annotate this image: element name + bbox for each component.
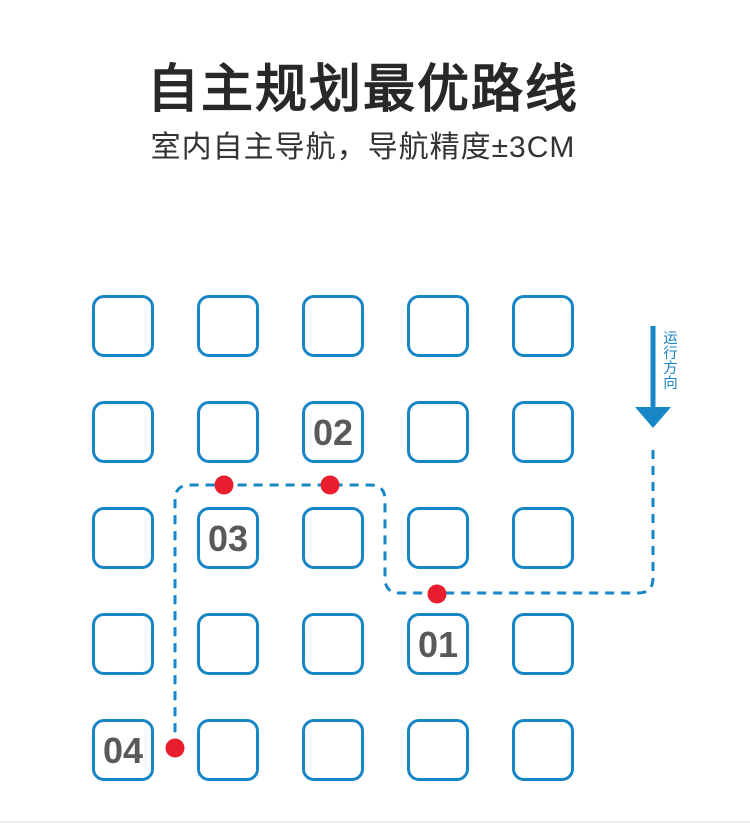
- grid-cell-r4c5: [512, 613, 574, 675]
- grid-cell-r1c3: [302, 295, 364, 357]
- grid-cell-r3c3: [302, 507, 364, 569]
- grid-cell-r5c5: [512, 719, 574, 781]
- grid-cell-r1c5: [512, 295, 574, 357]
- grid-cell-r1c4: [407, 295, 469, 357]
- stop-label-01: 01: [418, 627, 458, 663]
- grid-cell-r1c2: [197, 295, 259, 357]
- grid-cell-r2c3: 02: [302, 401, 364, 463]
- grid-cell-r5c3: [302, 719, 364, 781]
- grid-cell-r4c3: [302, 613, 364, 675]
- grid-cell-r4c2: [197, 613, 259, 675]
- grid-cell-r2c5: [512, 401, 574, 463]
- page: 自主规划最优路线 室内自主导航，导航精度±3CM 02030104 运行方向: [0, 0, 750, 826]
- grid-cell-r2c2: [197, 401, 259, 463]
- shelf-grid: 02030104: [92, 295, 574, 781]
- stop-label-04: 04: [103, 733, 143, 769]
- grid-cell-r3c1: [92, 507, 154, 569]
- direction-label: 运行方向: [661, 330, 676, 390]
- direction-arrow-head-icon: [635, 407, 671, 428]
- grid-cell-r5c4: [407, 719, 469, 781]
- grid-cell-r3c5: [512, 507, 574, 569]
- grid-cell-r2c1: [92, 401, 154, 463]
- stop-label-02: 02: [313, 415, 353, 451]
- grid-cell-r3c4: [407, 507, 469, 569]
- grid-cell-r1c1: [92, 295, 154, 357]
- page-subtitle: 室内自主导航，导航精度±3CM: [0, 130, 726, 166]
- bottom-divider: [0, 821, 750, 823]
- header: 自主规划最优路线 室内自主导航，导航精度±3CM: [0, 0, 750, 166]
- page-title: 自主规划最优路线: [0, 0, 726, 120]
- grid-cell-r4c1: [92, 613, 154, 675]
- grid-cell-r2c4: [407, 401, 469, 463]
- grid-cell-r5c1: 04: [92, 719, 154, 781]
- grid-cell-r4c4: 01: [407, 613, 469, 675]
- grid-cell-r3c2: 03: [197, 507, 259, 569]
- grid-cell-r5c2: [197, 719, 259, 781]
- stop-label-03: 03: [208, 521, 248, 557]
